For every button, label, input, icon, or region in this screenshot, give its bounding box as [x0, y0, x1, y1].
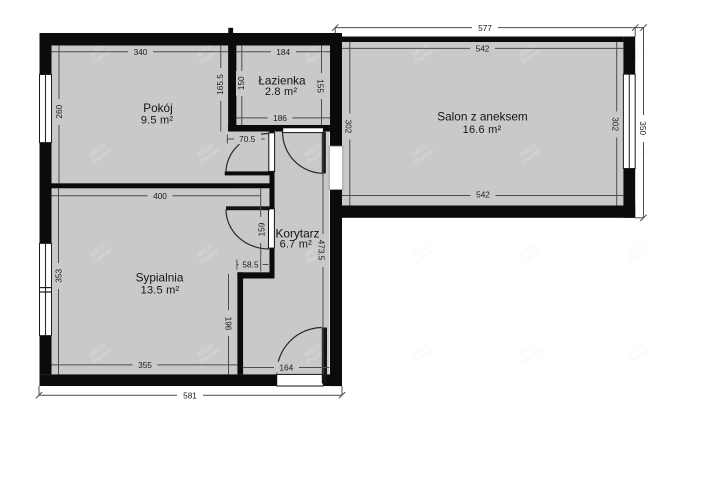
svg-text:196: 196	[224, 317, 234, 331]
svg-text:302: 302	[344, 120, 354, 134]
svg-text:164: 164	[279, 363, 293, 373]
svg-text:302: 302	[611, 117, 621, 131]
svg-text:473.5: 473.5	[317, 240, 327, 261]
svg-text:165.5: 165.5	[215, 74, 225, 95]
svg-text:Salon z aneksem: Salon z aneksem	[437, 110, 528, 124]
svg-text:260: 260	[54, 104, 64, 118]
svg-text:355: 355	[138, 360, 152, 370]
svg-text:340: 340	[134, 47, 148, 57]
svg-text:155: 155	[315, 79, 325, 93]
svg-text:Sypialnia: Sypialnia	[136, 270, 184, 284]
svg-text:Pokój: Pokój	[143, 101, 173, 115]
svg-text:577: 577	[478, 23, 492, 33]
svg-text:400: 400	[153, 191, 167, 201]
svg-text:350: 350	[638, 121, 648, 135]
svg-text:542: 542	[476, 44, 490, 54]
svg-text:2.8 m²: 2.8 m²	[265, 86, 298, 98]
svg-text:6.7 m²: 6.7 m²	[280, 239, 313, 251]
svg-text:70.5: 70.5	[239, 134, 256, 144]
svg-text:13.5 m²: 13.5 m²	[141, 284, 180, 296]
svg-text:184: 184	[276, 47, 290, 57]
svg-text:542: 542	[476, 189, 490, 199]
svg-text:58.5: 58.5	[242, 260, 259, 270]
svg-text:353: 353	[53, 268, 63, 282]
svg-text:16.6 m²: 16.6 m²	[463, 124, 502, 136]
svg-text:9.5 m²: 9.5 m²	[141, 115, 174, 127]
svg-text:581: 581	[183, 390, 197, 400]
svg-text:186: 186	[273, 113, 287, 123]
svg-text:150: 150	[236, 76, 246, 90]
svg-text:159: 159	[257, 222, 267, 236]
